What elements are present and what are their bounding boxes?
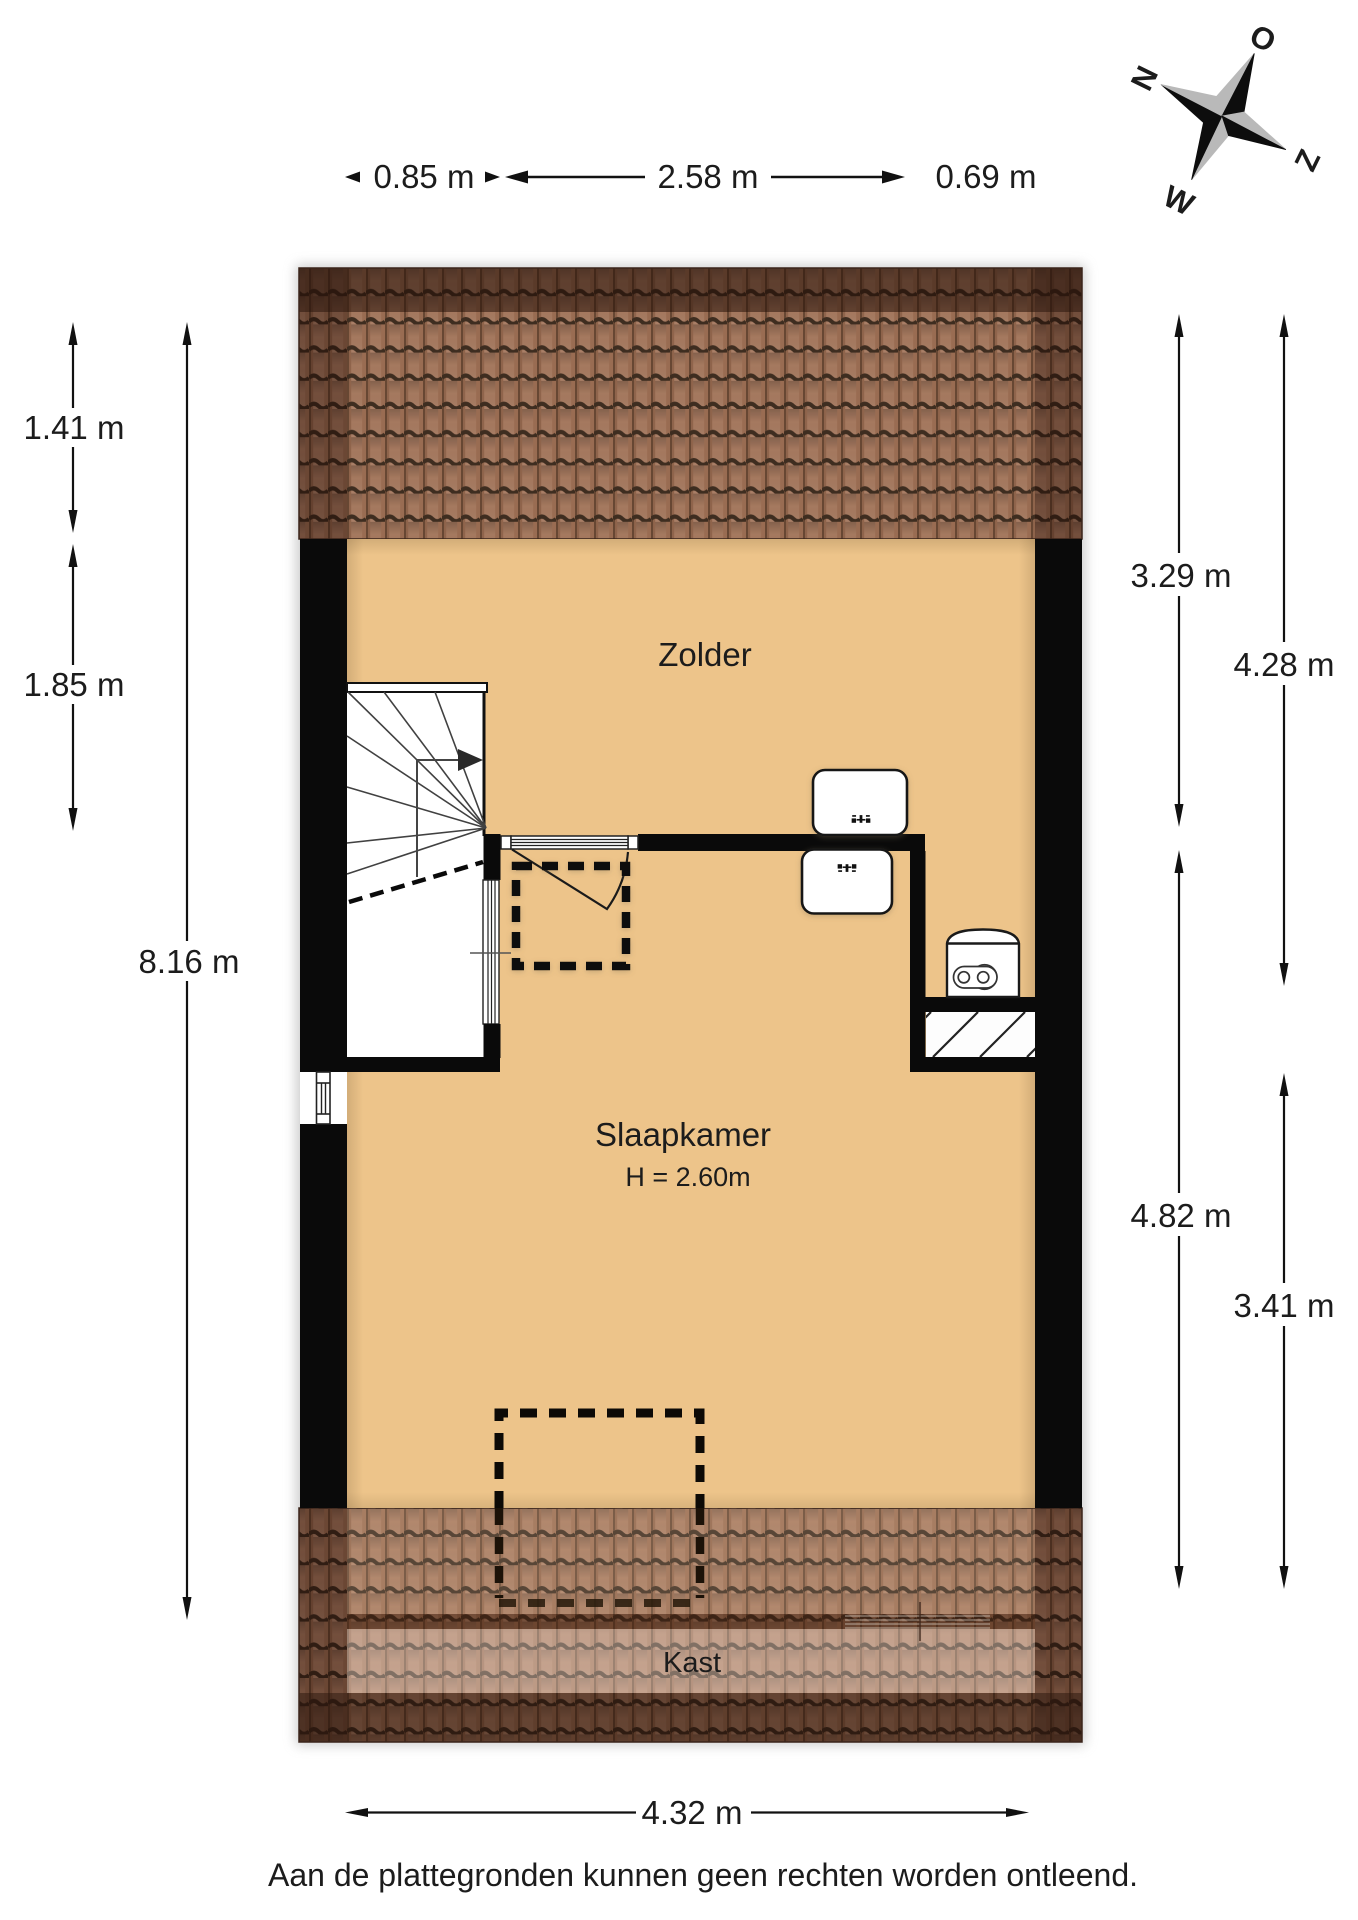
svg-text:Slaapkamer: Slaapkamer <box>595 1116 771 1153</box>
svg-text:3.41 m: 3.41 m <box>1234 1287 1335 1324</box>
svg-text:3.29 m: 3.29 m <box>1131 557 1232 594</box>
svg-text:0.85 m: 0.85 m <box>374 158 475 195</box>
svg-text:N: N <box>1124 60 1165 95</box>
svg-text:Aan de plattegronden kunnen ge: Aan de plattegronden kunnen geen rechten… <box>268 1857 1138 1893</box>
svg-text:1.41 m: 1.41 m <box>24 409 125 446</box>
svg-text:0.69 m: 0.69 m <box>936 158 1037 195</box>
svg-text:Kast: Kast <box>663 1647 721 1679</box>
svg-text:4.82 m: 4.82 m <box>1131 1197 1232 1234</box>
svg-text:Z: Z <box>1288 144 1328 176</box>
svg-text:Zolder: Zolder <box>658 636 752 673</box>
svg-text:2.58 m: 2.58 m <box>658 158 759 195</box>
svg-text:1.85 m: 1.85 m <box>24 666 125 703</box>
svg-text:W: W <box>1158 178 1200 223</box>
svg-text:H = 2.60m: H = 2.60m <box>625 1162 750 1192</box>
svg-text:4.28 m: 4.28 m <box>1234 646 1335 683</box>
svg-text:8.16 m: 8.16 m <box>139 943 240 980</box>
svg-text:O: O <box>1244 17 1281 59</box>
svg-text:4.32 m: 4.32 m <box>642 1794 743 1831</box>
